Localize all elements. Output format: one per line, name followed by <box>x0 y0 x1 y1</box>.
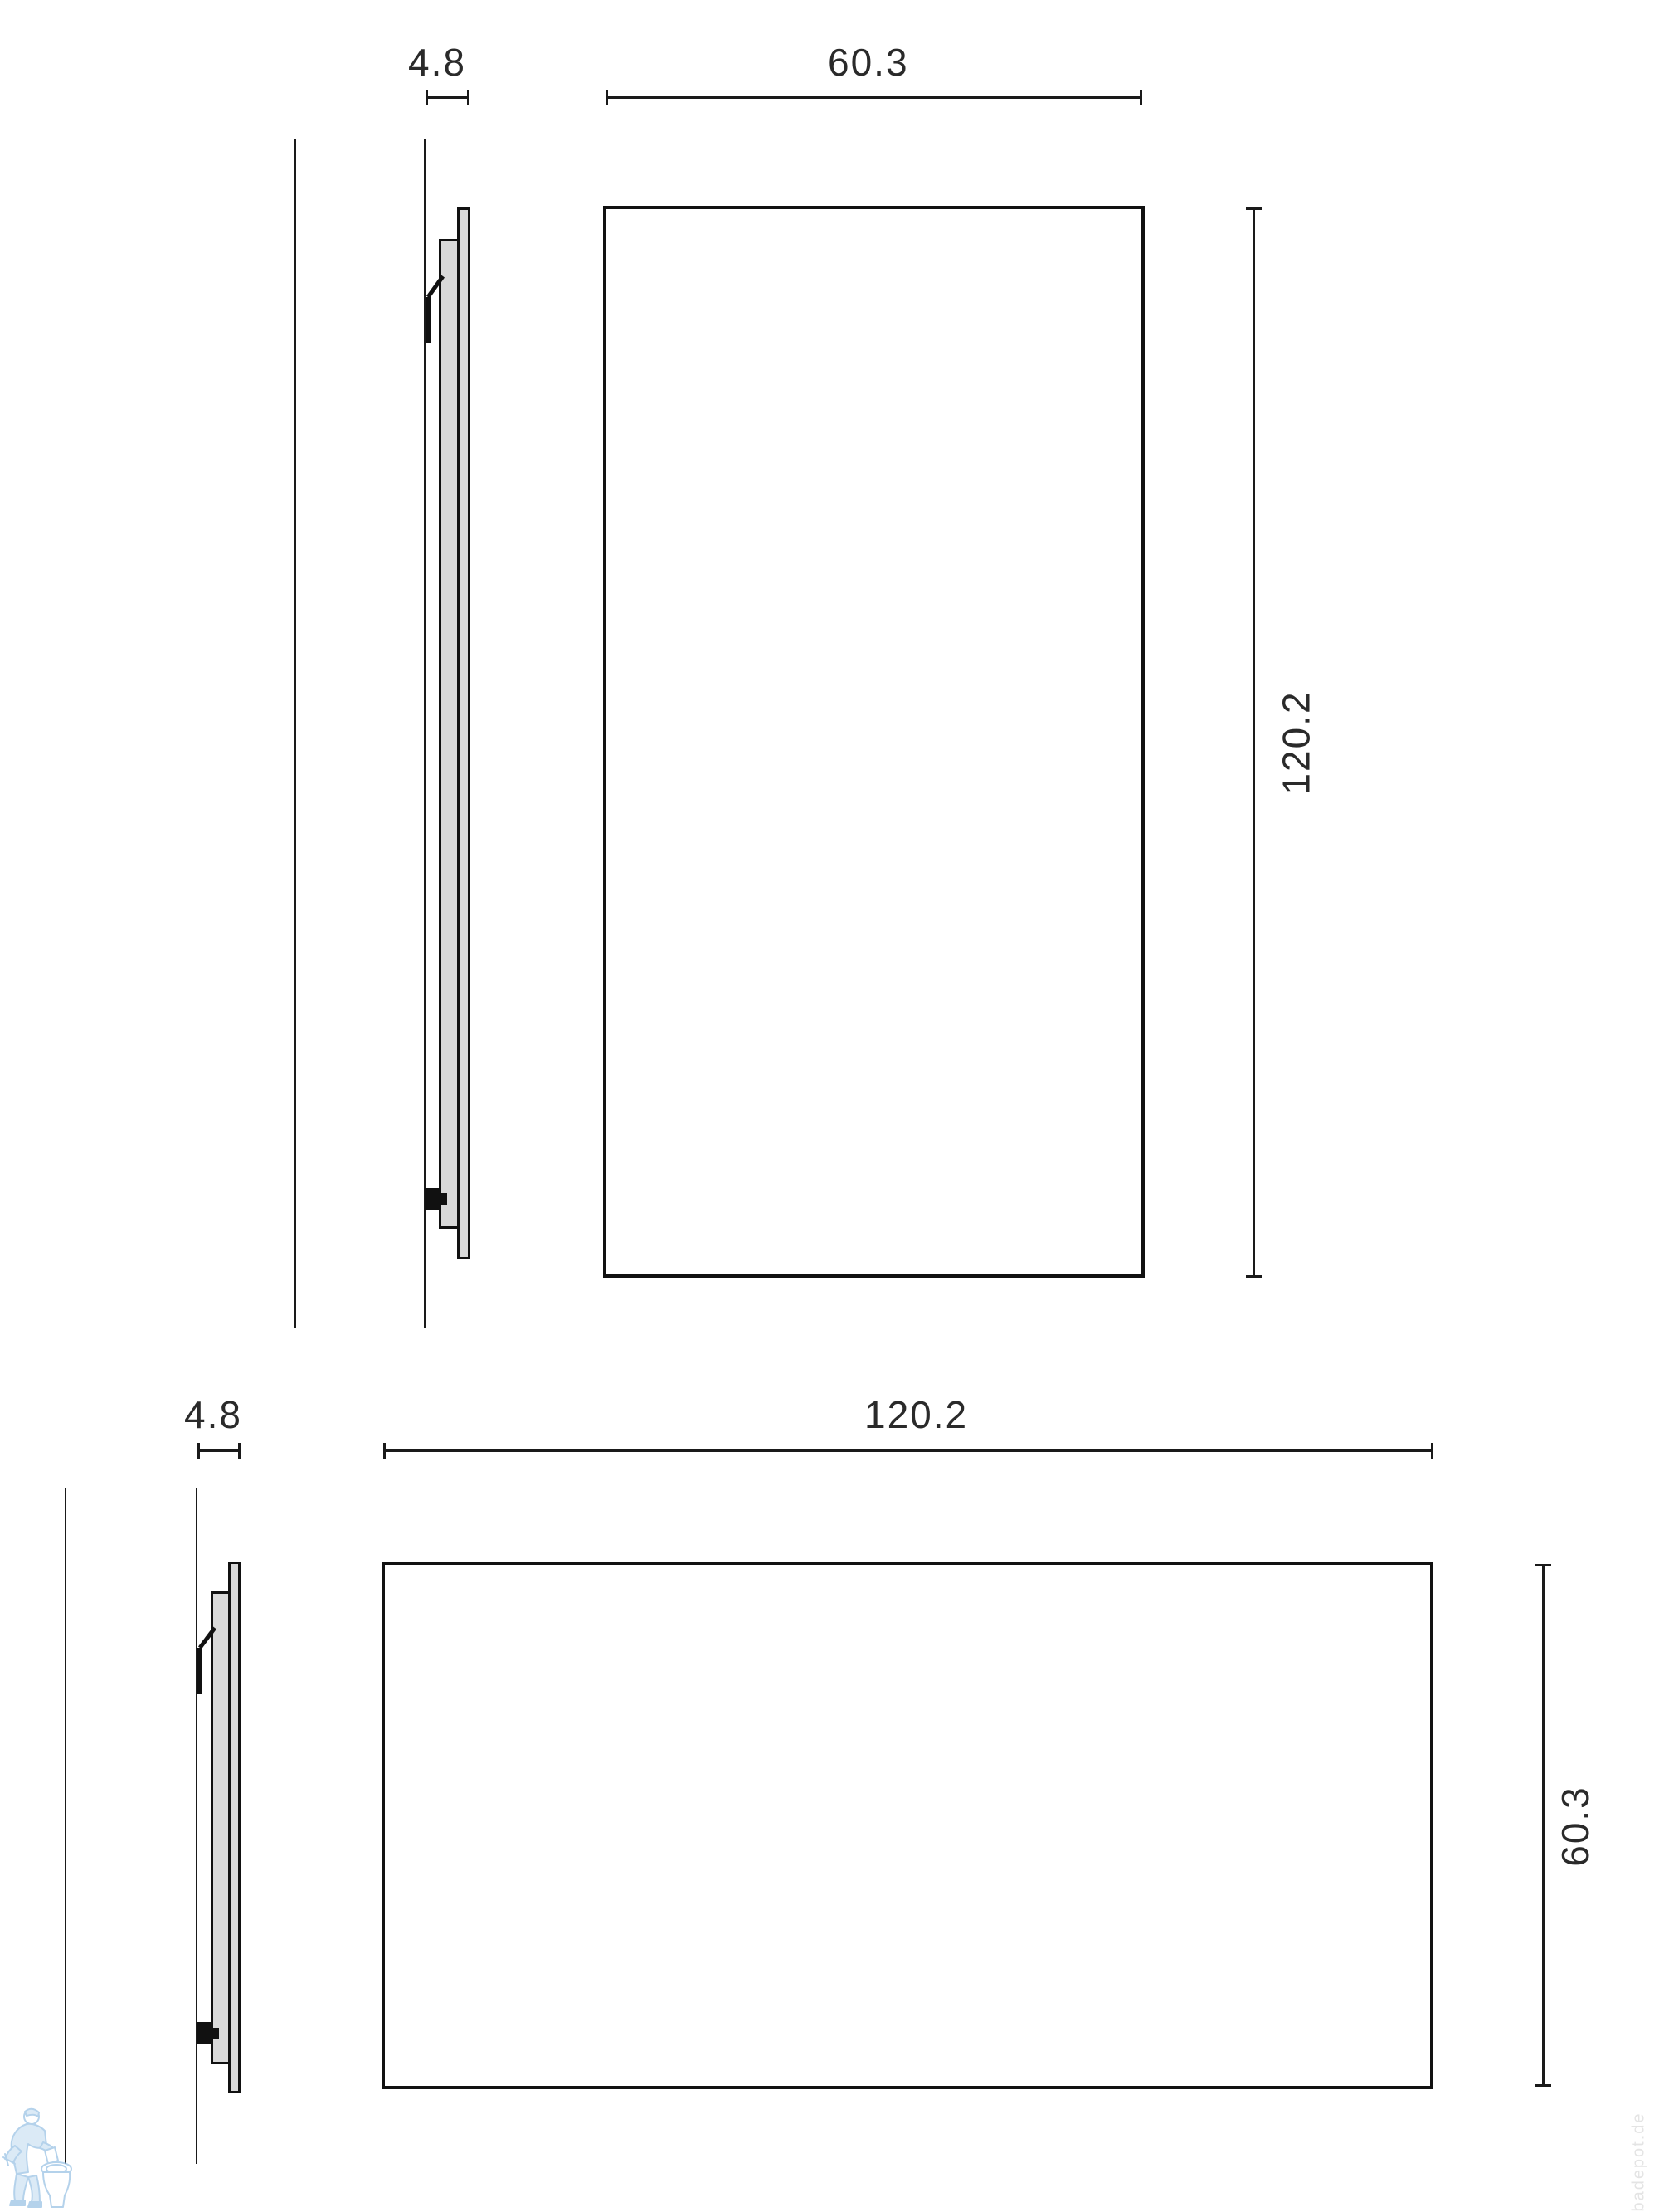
plumber-toilet-watermark-icon <box>2 2106 73 2212</box>
bottom-wall-hook-icon <box>192 1622 221 1698</box>
bottom-width-label: 120.2 <box>864 1396 968 1434</box>
bottom-spacer-knob-stem <box>212 2028 219 2039</box>
bottom-thickness-label: 4.8 <box>184 1396 242 1434</box>
top-wall-line-outer <box>294 139 296 1328</box>
bottom-height-label: 60.3 <box>1556 1786 1594 1867</box>
top-panel-front-slab <box>457 207 470 1259</box>
top-height-label: 120.2 <box>1277 690 1316 794</box>
top-wall-hook-icon <box>420 270 450 348</box>
bottom-wall-line-outer <box>65 1488 66 2164</box>
top-spacer-knob-stem <box>440 1193 447 1205</box>
bottom-front-view-rect <box>382 1562 1433 2089</box>
bottom-width-dim-line <box>383 1449 1433 1452</box>
bottom-panel-front-slab <box>228 1562 241 2093</box>
bottom-height-dim-line <box>1542 1564 1545 2087</box>
top-height-dim-line <box>1253 207 1255 1278</box>
top-width-label: 60.3 <box>828 43 909 81</box>
shop-watermark-vertical-text: badepot.de <box>1630 2112 1649 2211</box>
top-front-view-rect <box>603 206 1145 1278</box>
top-thickness-label: 4.8 <box>408 43 466 81</box>
bottom-wall-line-surface <box>196 1488 197 2164</box>
top-width-dim-line <box>606 96 1142 99</box>
top-thickness-dim-line <box>426 96 469 99</box>
top-spacer-knob <box>425 1188 440 1210</box>
bottom-spacer-knob <box>197 2022 212 2044</box>
dimension-drawing-page: 4.8 60.3 120.2 4.8 120.2 <box>0 0 1659 2212</box>
bottom-thickness-dim-line <box>197 1449 241 1452</box>
